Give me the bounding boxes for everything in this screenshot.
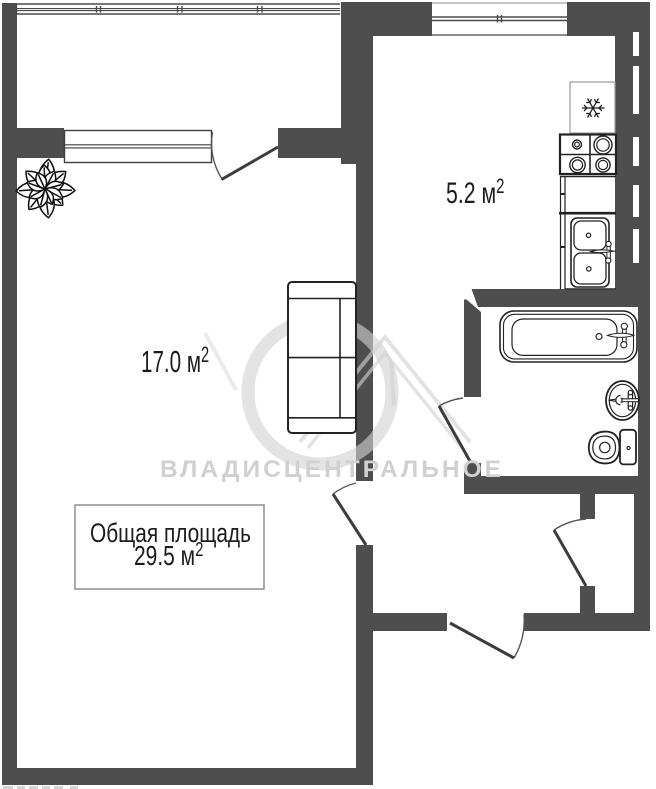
svg-text:29.5 м2: 29.5 м2 — [134, 538, 203, 572]
svg-text:5.2 м2: 5.2 м2 — [446, 175, 504, 210]
svg-text:17.0 м2: 17.0 м2 — [141, 342, 209, 379]
svg-text:ВЛАДИСЦЕНТРАЛЬНОЕ: ВЛАДИСЦЕНТРАЛЬНОЕ — [160, 456, 501, 483]
